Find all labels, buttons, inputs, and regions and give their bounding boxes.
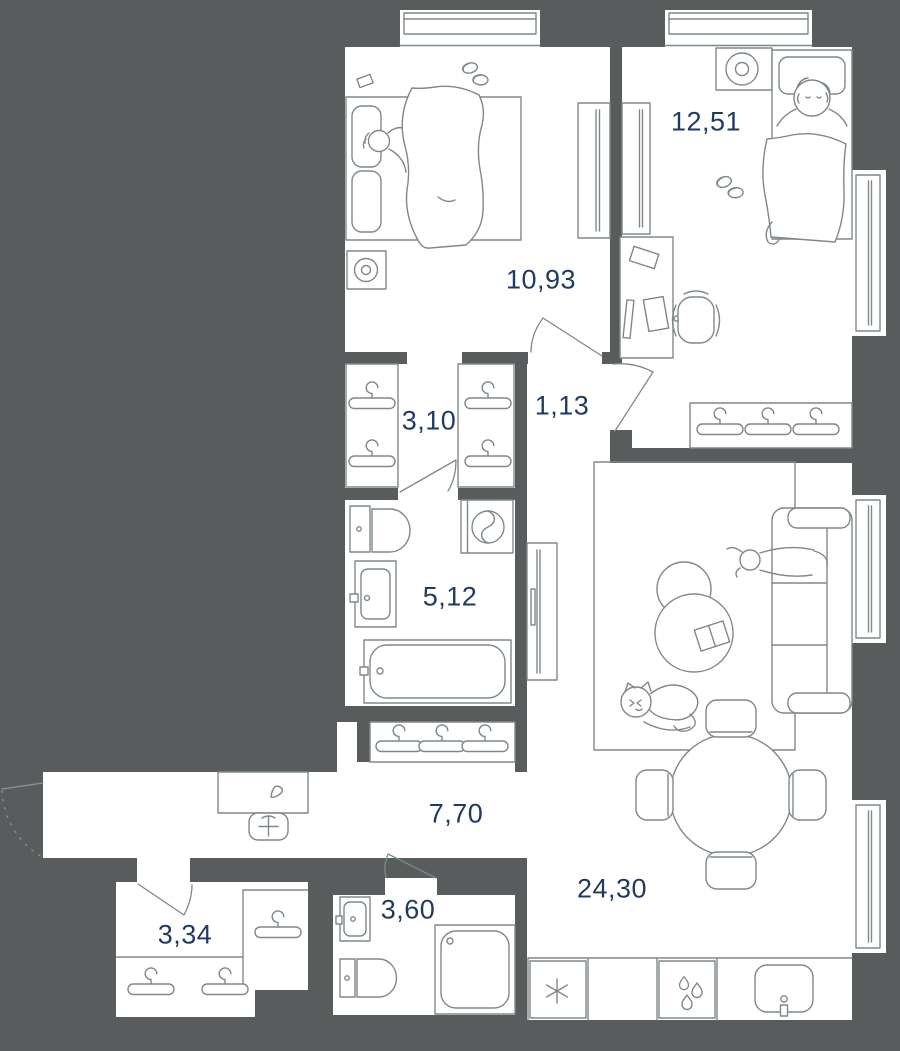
floor-plan-drawing — [0, 0, 900, 1051]
area-label-storage: 3,34 — [158, 920, 213, 951]
floor-plan-page: 12,51 10,93 3,10 1,13 5,12 7,70 24,30 3,… — [0, 0, 900, 1051]
area-label-wardrobe: 3,10 — [402, 406, 457, 437]
area-label-hallway: 7,70 — [429, 799, 484, 830]
area-label-bedroom-2: 12,51 — [671, 107, 741, 138]
kitchen-sink-icon — [755, 965, 813, 1016]
chair-icon — [706, 852, 756, 889]
room-hallway-floor — [43, 772, 600, 858]
area-label-corridor: 1,13 — [535, 391, 590, 422]
tv-cabinet-icon — [527, 543, 557, 680]
blanket-icon — [763, 134, 846, 242]
bathtub-icon — [360, 640, 511, 703]
area-label-bedroom-1: 10,93 — [506, 265, 576, 296]
area-label-wc: 3,60 — [381, 895, 436, 926]
chair-icon — [636, 770, 673, 820]
window-band-top-2 — [665, 10, 812, 47]
wardrobe-icon — [578, 103, 610, 238]
toilet-icon — [340, 959, 397, 997]
speaker-icon — [347, 251, 386, 289]
sofa-icon — [772, 508, 852, 713]
blanket-icon — [402, 86, 483, 248]
chair-icon — [706, 700, 756, 737]
area-label-bathroom: 5,12 — [423, 582, 478, 613]
area-label-living-kitchen: 24,30 — [577, 874, 647, 905]
console-desk-icon — [218, 772, 308, 813]
small-sink-icon — [336, 897, 370, 941]
wardrobe-icon — [622, 103, 650, 234]
nightstand-icon — [716, 48, 772, 90]
stool-icon — [249, 813, 288, 840]
entrance-door-icon — [2, 783, 44, 858]
chair-icon — [789, 770, 826, 820]
window-band-top-1 — [400, 10, 540, 47]
shower-icon — [435, 925, 515, 1014]
washing-machine-icon — [461, 500, 513, 553]
dining-table-icon — [670, 734, 792, 856]
sink-icon — [350, 561, 396, 627]
toilet-icon — [350, 506, 410, 552]
